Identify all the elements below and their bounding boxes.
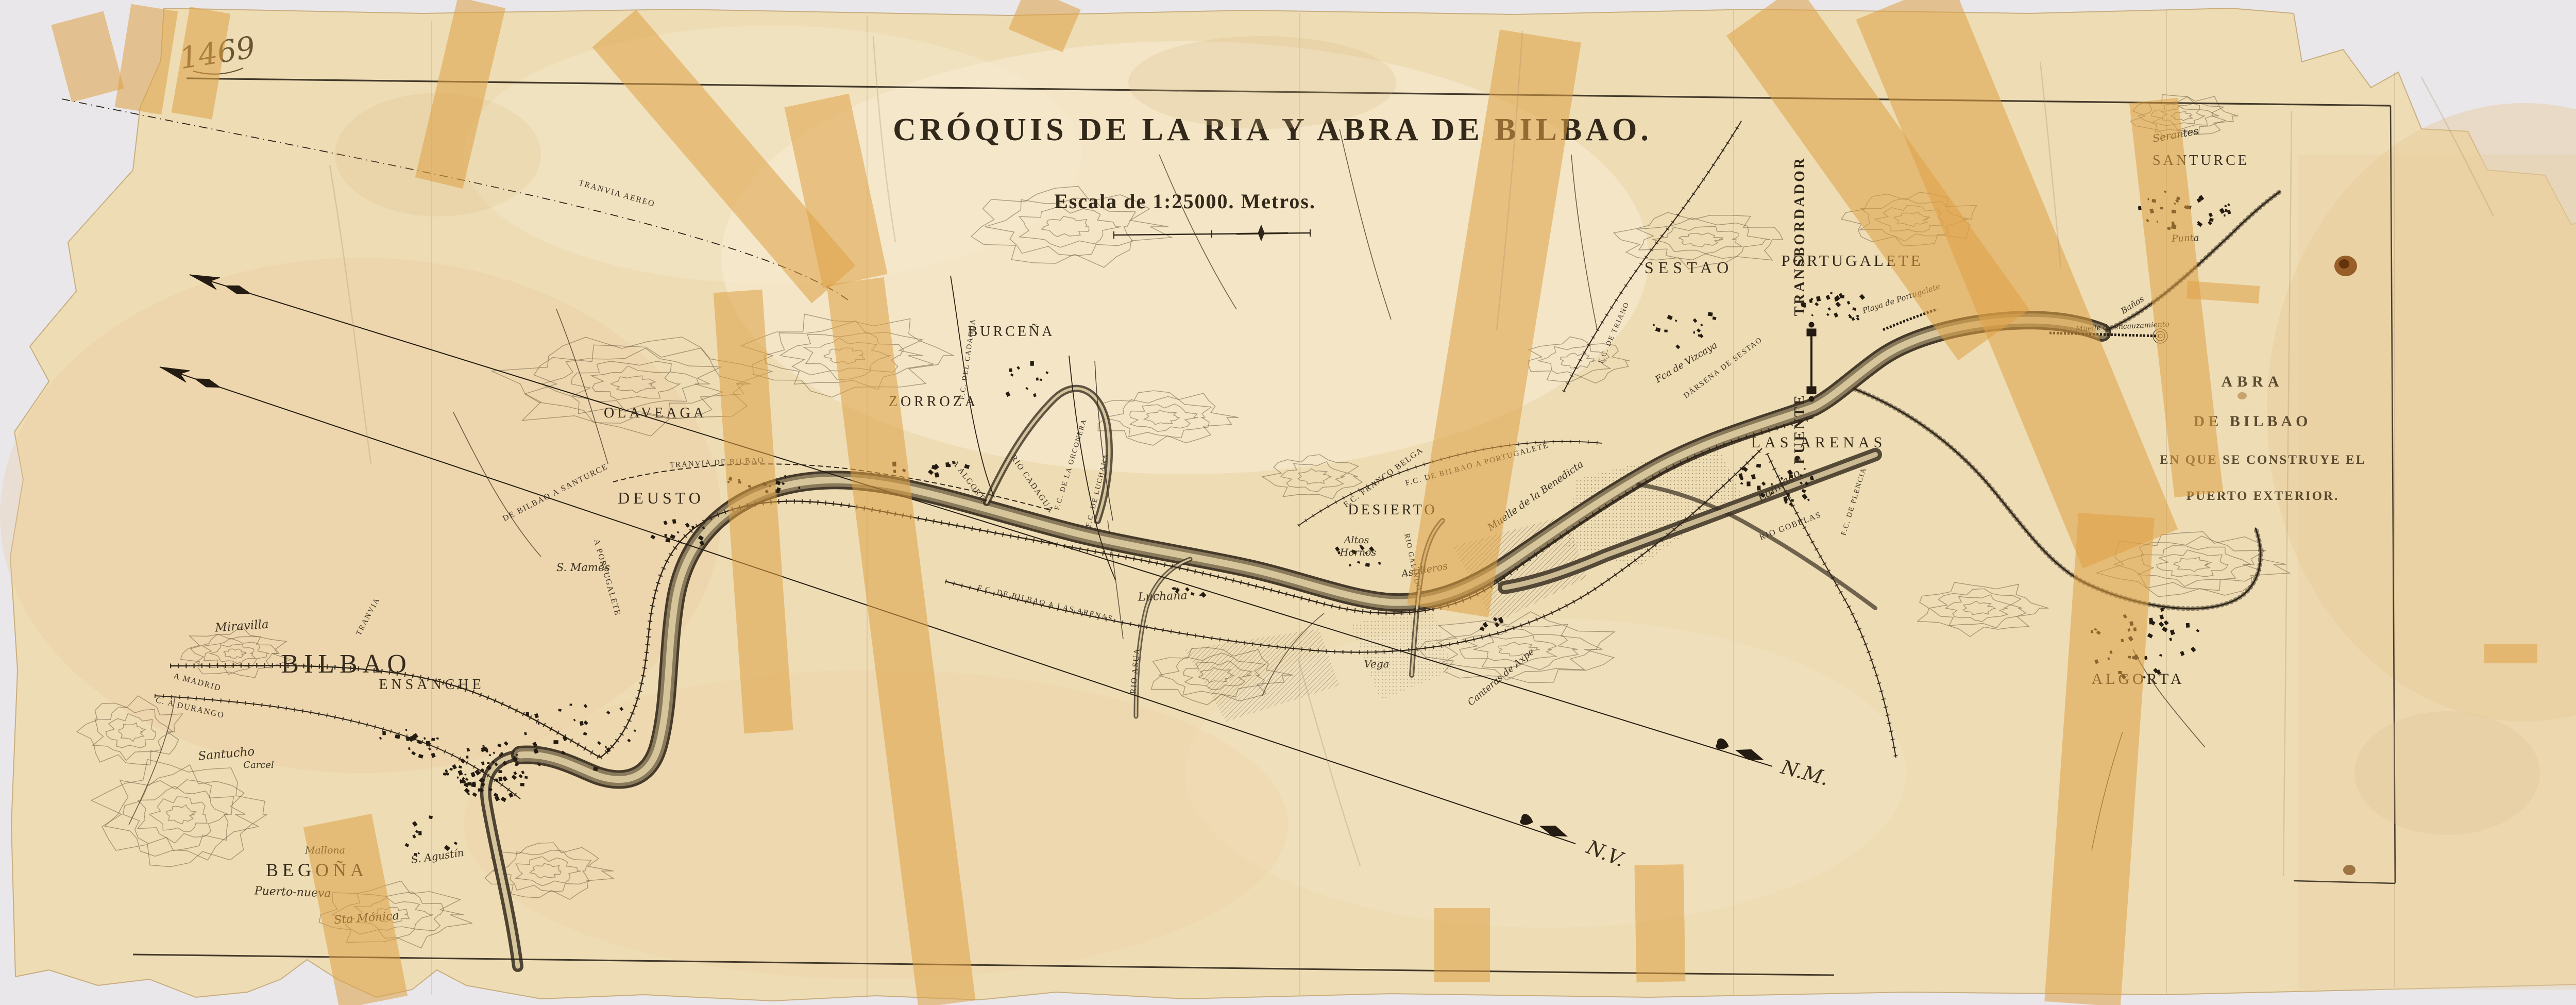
town-bilbao: BILBAO [281, 649, 412, 679]
district-ensanche: ENSANCHE [379, 677, 484, 693]
town-olaveaga: OLAVEAGA [604, 405, 707, 421]
bridge-transbordador: TRANSBORDADOR [1792, 156, 1808, 316]
town-sestao: SESTAO [1645, 258, 1733, 277]
abra-annotation-1: ABRA [2221, 373, 2283, 390]
place-carcel: Carcel [243, 760, 274, 770]
map-scale: Escala de 1:25000. Metros. [1054, 190, 1316, 213]
bridge-puente: PUENTE [1792, 393, 1808, 464]
scanned-map-sheet: 1469CRÓQUIS DE LA RIA Y ABRA DE BILBAO.E… [0, 0, 2576, 1005]
place-vega: Vega [1364, 658, 1389, 670]
place-altos-hornos-2: Hornos [1340, 547, 1377, 558]
place-altos-hornos-1: Altos [1343, 534, 1369, 546]
map-canvas: 1469CRÓQUIS DE LA RIA Y ABRA DE BILBAO.E… [0, 0, 2576, 1005]
town-deusto: DEUSTO [618, 489, 704, 507]
town-burcena: BURCEÑA [968, 324, 1055, 340]
place-luchana: Luchana [1138, 589, 1188, 604]
town-las-arenas: LAS ARENAS [1751, 434, 1887, 451]
